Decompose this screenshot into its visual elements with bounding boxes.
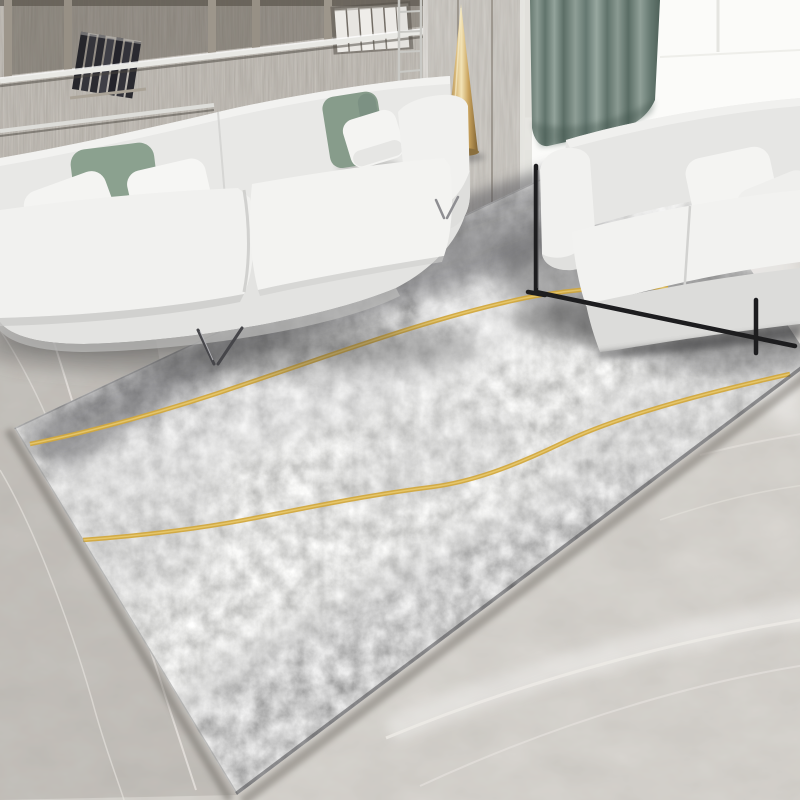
shelf-divider	[252, 0, 260, 50]
living-room-photo: Modern living room with a gray abstract …	[0, 0, 800, 800]
shelf-bay	[216, 0, 252, 51]
shelf-divider	[208, 0, 216, 56]
scene-canvas	[0, 0, 800, 800]
shelf-divider	[64, 0, 72, 72]
shelf-bay	[260, 0, 324, 46]
sofa-seat-cushion-left	[0, 188, 253, 318]
shelf-divider	[4, 0, 12, 78]
shelf-divider	[324, 0, 332, 42]
shelf-bay	[10, 0, 64, 75]
